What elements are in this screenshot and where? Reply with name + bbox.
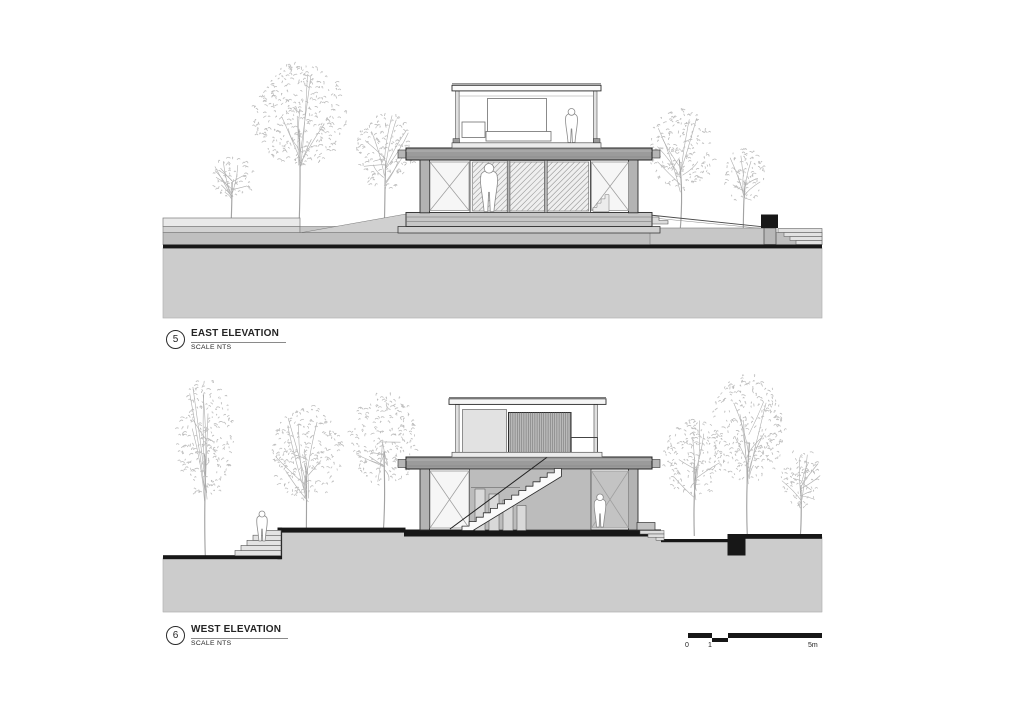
tree <box>663 419 729 536</box>
scale-bar-label: 5m <box>808 642 818 649</box>
scale-bar-label: 1 <box>708 642 712 649</box>
tree <box>213 157 255 219</box>
east-elevation-scale-note: SCALE NTS <box>191 344 286 351</box>
detail-number-badge: 6 <box>166 626 185 645</box>
tree <box>712 375 787 536</box>
west-elevation-scale-note: SCALE NTS <box>191 640 288 647</box>
elevations-drawing <box>0 0 1024 724</box>
tree <box>650 109 716 229</box>
scale-bar-label: 0 <box>685 642 689 649</box>
east-title-text: EAST ELEVATION SCALE NTS <box>191 328 286 351</box>
east-elevation-drawing <box>163 62 822 318</box>
drawing-sheet: 5 EAST ELEVATION SCALE NTS 6 WEST ELEVAT… <box>0 0 1024 724</box>
detail-number-badge: 5 <box>166 330 185 349</box>
tree <box>357 113 416 227</box>
tree <box>272 405 344 548</box>
west-building <box>398 397 664 540</box>
tree <box>175 380 233 556</box>
tree <box>781 451 820 537</box>
east-building <box>398 84 660 233</box>
tree <box>725 148 766 229</box>
east-elevation-title: EAST ELEVATION <box>191 328 286 343</box>
scale-bar-segment <box>712 638 728 643</box>
west-upper-floor <box>449 397 606 457</box>
scale-bar: 0 1 5m <box>680 626 830 654</box>
west-title-text: WEST ELEVATION SCALE NTS <box>191 624 288 647</box>
scale-bar-segment <box>728 633 822 638</box>
east-title-block: 5 EAST ELEVATION SCALE NTS <box>166 328 286 351</box>
west-elevation-title: WEST ELEVATION <box>191 624 288 639</box>
scale-bar-segment <box>688 633 712 638</box>
west-elevation-drawing <box>163 375 822 612</box>
west-title-block: 6 WEST ELEVATION SCALE NTS <box>166 624 288 647</box>
tree <box>252 62 347 219</box>
east-upper-floor <box>452 84 601 148</box>
